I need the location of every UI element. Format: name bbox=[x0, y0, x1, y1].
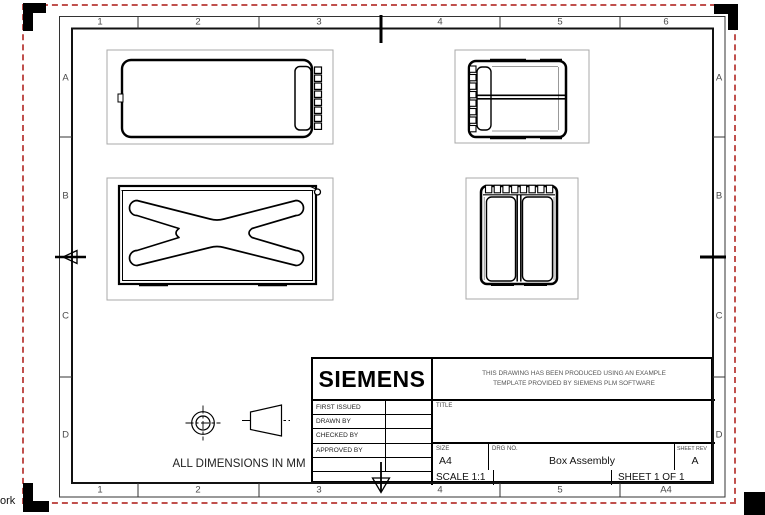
zone-left-c: C bbox=[62, 311, 69, 322]
empty-approval-value[interactable] bbox=[386, 458, 433, 472]
size-field: SIZE A4 bbox=[433, 444, 489, 470]
template-disclaimer: THIS DRAWING HAS BEEN PRODUCED USING AN … bbox=[433, 359, 715, 401]
approved-by-value[interactable] bbox=[386, 444, 433, 458]
title-block-blank-strip bbox=[313, 472, 433, 485]
disclaimer-line-1: THIS DRAWING HAS BEEN PRODUCED USING AN … bbox=[482, 369, 666, 379]
first-issued-value[interactable] bbox=[386, 401, 433, 415]
zone-right-c: C bbox=[716, 311, 723, 322]
zone-bottom-5: 5 bbox=[557, 485, 562, 496]
siemens-logo: SIEMENS bbox=[313, 359, 433, 401]
zone-left-b: B bbox=[62, 191, 68, 202]
sheet-number-field: SHEET 1 OF 1 bbox=[612, 470, 715, 485]
zone-top-3: 3 bbox=[316, 17, 321, 28]
logo-text: SIEMENS bbox=[318, 366, 425, 393]
corner-mark-top-left bbox=[23, 3, 33, 31]
title-field-label: TITLE bbox=[436, 403, 715, 409]
corner-mark-bottom-right bbox=[744, 492, 765, 515]
zone-left-d: D bbox=[62, 430, 69, 441]
drawn-by-value[interactable] bbox=[386, 415, 433, 429]
zone-bottom-3: 3 bbox=[316, 485, 321, 496]
zone-right-b: B bbox=[716, 191, 722, 202]
drg-no-value: Box Assembly bbox=[489, 455, 675, 467]
first-issued-label: FIRST ISSUED bbox=[313, 401, 386, 415]
sheet-rev-label: SHEET REV bbox=[677, 446, 715, 452]
screenshot-root: { "colors": { "line": "#000000", "view_b… bbox=[0, 0, 765, 515]
title-block: SIEMENS FIRST ISSUED DRAWN BY CHECKED BY… bbox=[311, 357, 713, 483]
title-field[interactable]: TITLE bbox=[433, 401, 715, 444]
disclaimer-line-2: TEMPLATE PROVIDED BY SIEMENS PLM SOFTWAR… bbox=[493, 379, 655, 389]
zone-left-a: A bbox=[62, 73, 68, 84]
clipped-window-text: ork bbox=[0, 495, 15, 507]
empty-approval-label bbox=[313, 458, 386, 472]
zone-bottom-a4: A4 bbox=[660, 485, 672, 496]
scale-field: SCALE 1:1 bbox=[433, 470, 494, 485]
drg-no-field: DRG NO. Box Assembly bbox=[489, 444, 675, 470]
zone-top-4: 4 bbox=[437, 17, 442, 28]
zone-top-5: 5 bbox=[557, 17, 562, 28]
zone-right-d: D bbox=[716, 430, 723, 441]
corner-mark-top-right bbox=[728, 4, 738, 30]
zone-bottom-4: 4 bbox=[437, 485, 442, 496]
title-block-empty-cell bbox=[494, 470, 612, 485]
zone-bottom-1: 1 bbox=[97, 485, 102, 496]
drawn-by-label: DRAWN BY bbox=[313, 415, 386, 429]
sheet-rev-field: SHEET REV A bbox=[675, 444, 715, 470]
size-field-value: A4 bbox=[439, 455, 452, 467]
sheet-rev-value: A bbox=[675, 455, 715, 467]
size-field-label: SIZE bbox=[436, 446, 488, 452]
dimensions-note: ALL DIMENSIONS IN MM bbox=[168, 458, 310, 470]
corner-mark-bottom-left bbox=[23, 501, 49, 512]
zone-bottom-2: 2 bbox=[195, 485, 200, 496]
checked-by-label: CHECKED BY bbox=[313, 429, 386, 443]
drg-no-label: DRG NO. bbox=[492, 446, 674, 452]
checked-by-value[interactable] bbox=[386, 429, 433, 443]
zone-right-a: A bbox=[716, 73, 722, 84]
zone-top-2: 2 bbox=[195, 17, 200, 28]
zone-top-6: 6 bbox=[663, 17, 668, 28]
approved-by-label: APPROVED BY bbox=[313, 444, 386, 458]
zone-top-1: 1 bbox=[97, 17, 102, 28]
